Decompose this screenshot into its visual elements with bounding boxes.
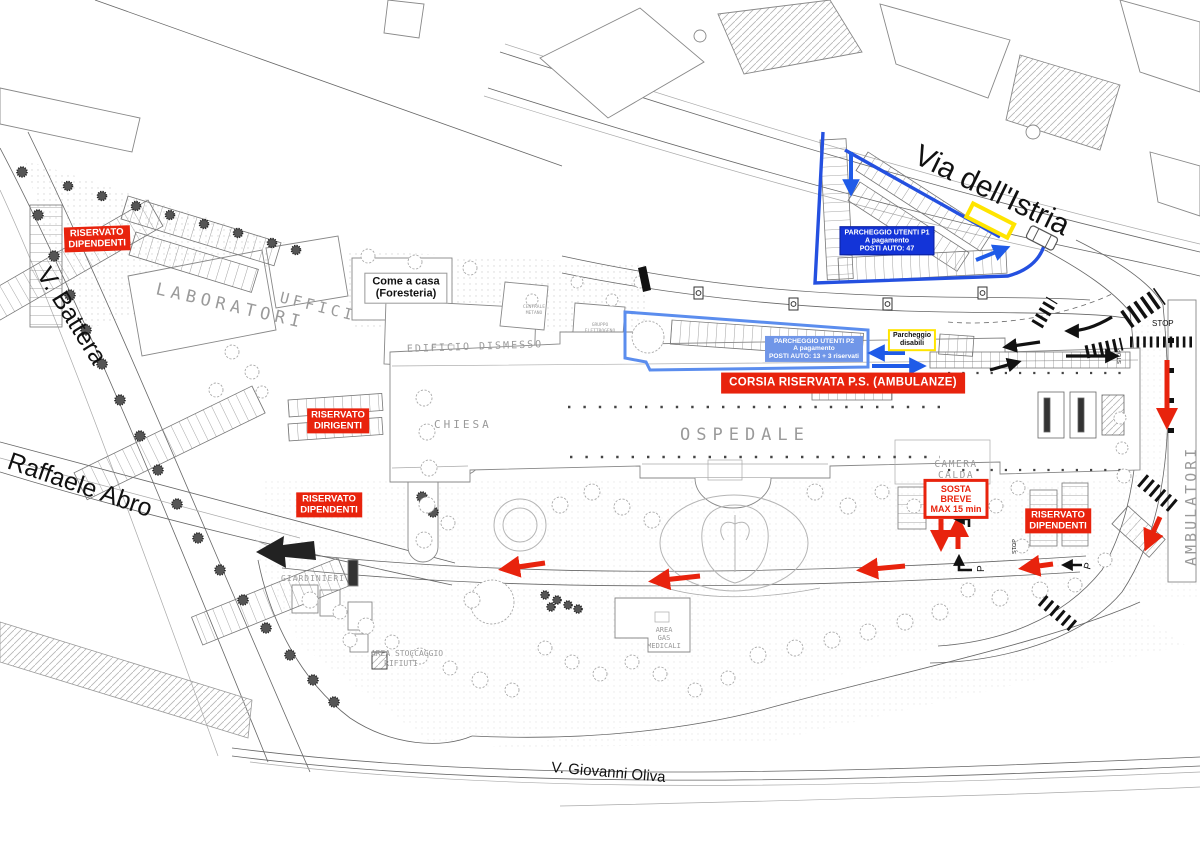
sign-riservato-dipendenti-1: RISERVATO DIPENDENTI [64,225,130,253]
label-area-stoccaggio: AREA STOCCAGGIO [371,649,443,658]
label-gruppo-elettrogeno: GRUPPO [592,322,609,328]
label-chiesa: CHIESA [434,418,492,431]
sign-riservato-dipendenti-2: RISERVATO DIPENDENTI [296,492,362,517]
sign-riservato-dirigenti: RISERVATO DIRIGENTI [307,408,369,433]
label-gruppo-elettrogeno-2: ELETTROGENO [585,328,616,334]
stop-sign-text: STOP [1152,319,1174,328]
label-camera-calda: CAMERA [934,459,977,470]
stop-sign-text-2: STOP [1117,349,1123,364]
label-centrale-metano: CENTRALE [523,304,545,310]
label-giardinieri: GIARDINIERI [281,574,345,583]
label-area-gas-2: GAS [658,634,671,642]
street-label-v-giovanni-oliva: V. Giovanni Oliva [551,759,667,786]
lamp-markers [694,287,987,310]
label-area-gas: AREA [656,626,674,634]
upper-buildings [0,0,1200,216]
sign-riservato-dipendenti-3: RISERVATO DIPENDENTI [1025,508,1091,533]
sign-corsia-ambulanze: CORSIA RISERVATA P.S. (AMBULANZE) [721,373,965,394]
sign-come-a-casa: Come a casa (Foresteria) [364,273,447,304]
sign-parcheggio-disabili: Parcheggio disabili [888,329,936,351]
sign-sosta-breve: SOSTA BREVE MAX 15 min [923,479,988,519]
label-area-gas-3: MEDICALI [647,642,681,650]
stop-sign-text-3: STOP [1012,539,1018,554]
label-area-stoccaggio-2: RIFIUTI [384,659,418,668]
label-centrale-metano-2: METANO [526,310,543,316]
hospital-site-plan: Via dell'Istria V. Battera Raffaele Abro… [0,0,1200,848]
site-plan-basemap: Via dell'Istria V. Battera Raffaele Abro… [0,0,1200,848]
sign-parcheggio-p1: PARCHEGGIO UTENTI P1 A pagamento POSTI A… [839,226,934,255]
sign-parcheggio-p2: PARCHEGGIO UTENTI P2 A pagamento POSTI A… [765,336,863,362]
label-ambulatori: AMBULATORI [1182,446,1200,566]
label-ospedale: OSPEDALE [680,425,810,445]
parking-marker-p2: P [976,565,987,572]
